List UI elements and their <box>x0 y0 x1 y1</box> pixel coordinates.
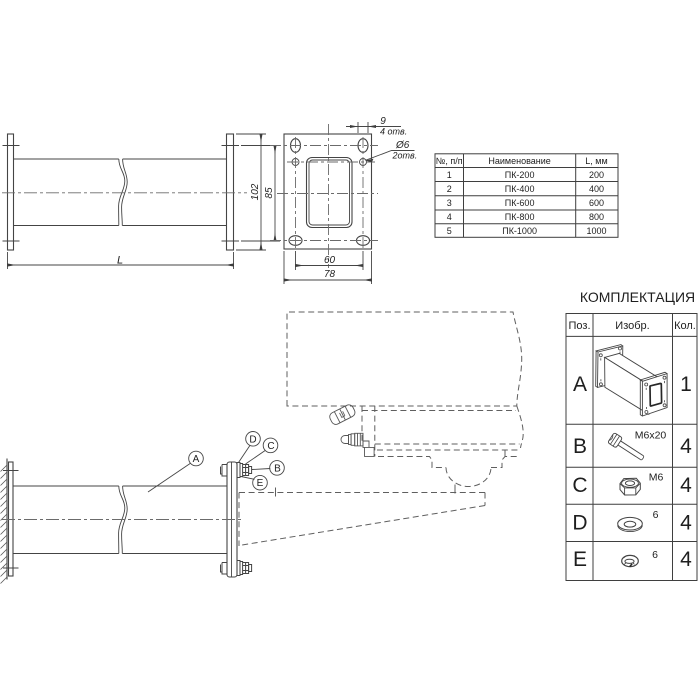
svg-text:4: 4 <box>680 474 692 497</box>
svg-text:4: 4 <box>680 512 692 535</box>
svg-text:6: 6 <box>652 549 658 561</box>
svg-text:4: 4 <box>680 548 692 571</box>
svg-text:М6: М6 <box>649 472 664 484</box>
svg-text:E: E <box>573 548 587 571</box>
svg-text:L, мм: L, мм <box>585 156 607 166</box>
svg-text:D: D <box>572 512 587 535</box>
svg-text:ПК-1000: ПК-1000 <box>502 226 537 236</box>
svg-text:Изобр.: Изобр. <box>615 320 649 332</box>
svg-text:Наименование: Наименование <box>488 156 550 166</box>
svg-text:60: 60 <box>324 255 336 266</box>
svg-text:D: D <box>249 434 256 445</box>
svg-text:3: 3 <box>447 198 452 208</box>
svg-text:2: 2 <box>447 184 452 194</box>
svg-text:B: B <box>274 464 281 475</box>
svg-text:1: 1 <box>447 170 452 180</box>
svg-text:800: 800 <box>589 212 604 222</box>
svg-text:5: 5 <box>447 226 452 236</box>
svg-text:E: E <box>257 478 264 489</box>
svg-text:B: B <box>573 435 587 458</box>
svg-text:Кол.: Кол. <box>674 320 696 332</box>
svg-text:М6х20: М6х20 <box>635 430 667 442</box>
svg-text:Ø6: Ø6 <box>395 140 410 151</box>
svg-text:1: 1 <box>680 373 692 396</box>
svg-text:4: 4 <box>447 212 452 222</box>
svg-text:ПК-800: ПК-800 <box>505 212 535 222</box>
svg-text:78: 78 <box>324 269 336 280</box>
svg-text:600: 600 <box>589 198 604 208</box>
svg-text:1000: 1000 <box>586 226 606 236</box>
svg-text:ПК-600: ПК-600 <box>505 198 535 208</box>
svg-text:102: 102 <box>250 183 261 200</box>
svg-text:4 отв.: 4 отв. <box>380 127 407 137</box>
svg-text:ПК-200: ПК-200 <box>505 170 535 180</box>
svg-text:L: L <box>117 255 123 267</box>
svg-text:КОМПЛЕКТАЦИЯ: КОМПЛЕКТАЦИЯ <box>580 289 695 305</box>
svg-text:A: A <box>193 454 200 465</box>
svg-text:400: 400 <box>589 184 604 194</box>
svg-text:C: C <box>267 441 274 452</box>
svg-text:C: C <box>572 474 587 497</box>
svg-text:6: 6 <box>653 509 659 521</box>
svg-text:200: 200 <box>589 170 604 180</box>
svg-text:85: 85 <box>264 187 275 199</box>
svg-text:Поз.: Поз. <box>569 320 591 332</box>
svg-text:2отв.: 2отв. <box>392 151 418 161</box>
svg-text:№, п/п: №, п/п <box>436 156 463 166</box>
svg-text:ПК-400: ПК-400 <box>505 184 535 194</box>
svg-text:4: 4 <box>680 435 692 458</box>
svg-text:A: A <box>573 373 587 396</box>
svg-text:9: 9 <box>380 116 386 127</box>
